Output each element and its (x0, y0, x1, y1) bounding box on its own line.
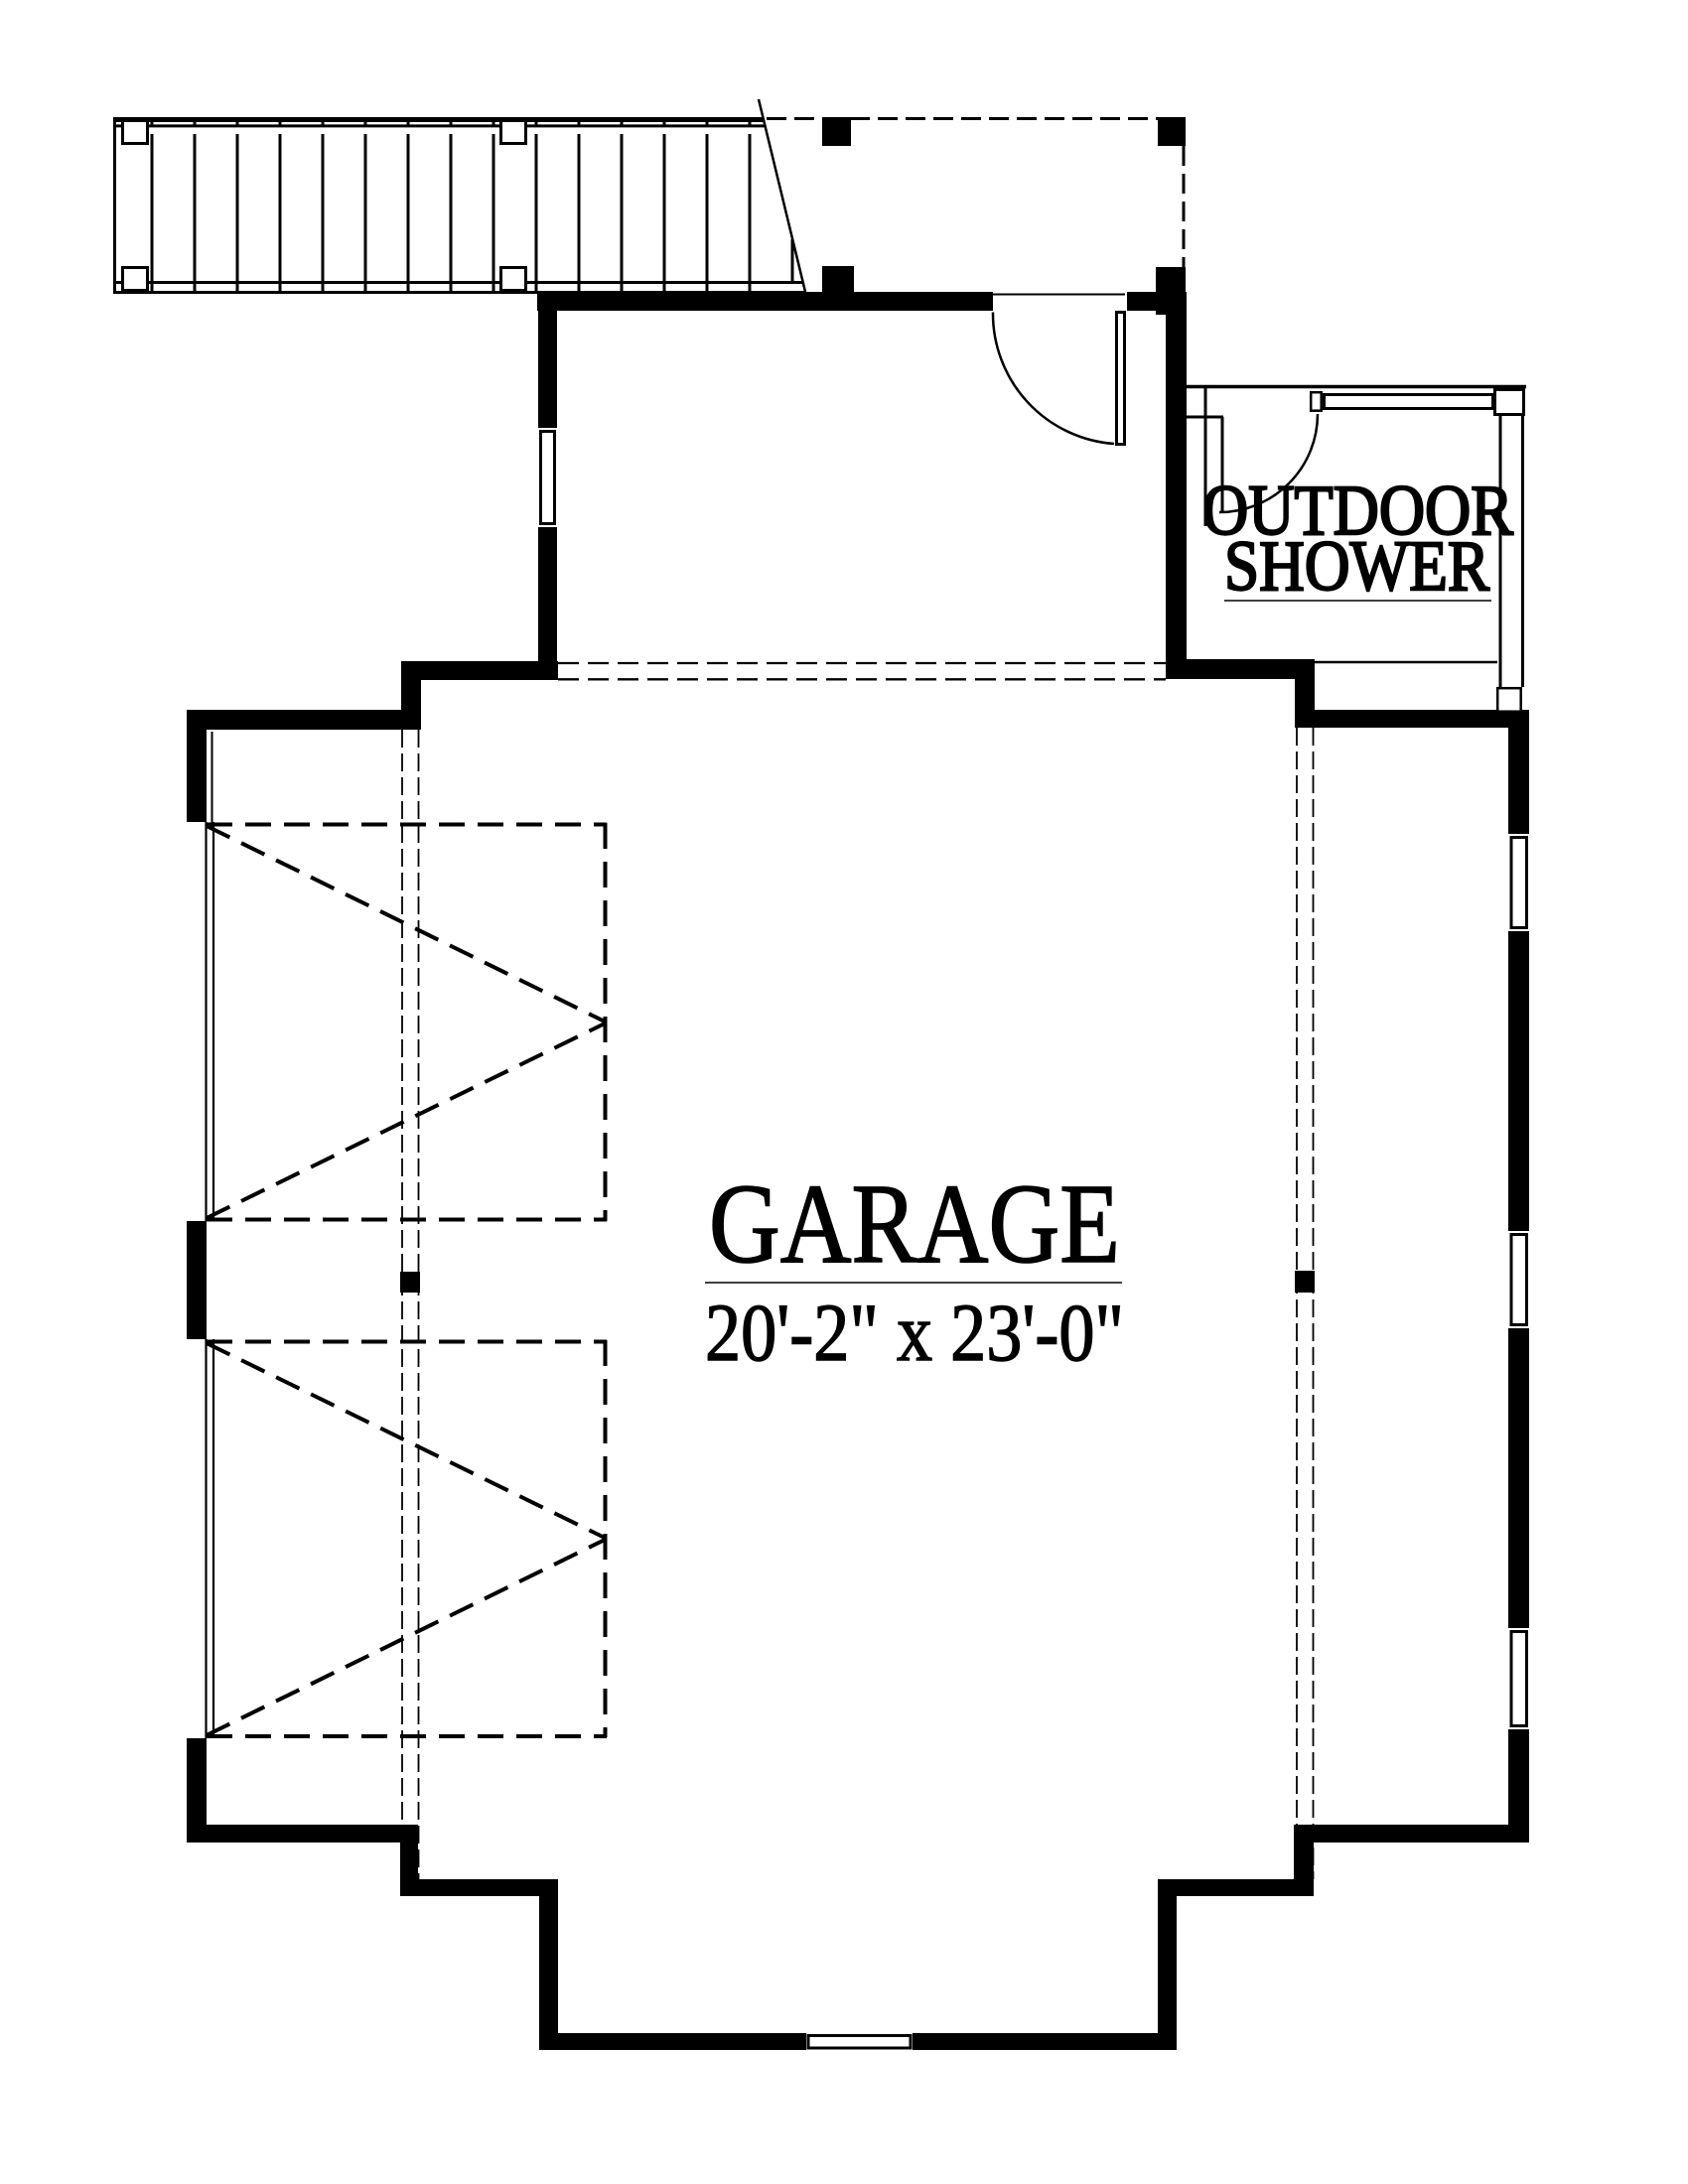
svg-text:20'-2" x 23'-0": 20'-2" x 23'-0" (705, 1287, 1124, 1378)
svg-text:SHOWER: SHOWER (1224, 526, 1489, 606)
svg-text:GARAGE: GARAGE (709, 1160, 1120, 1287)
